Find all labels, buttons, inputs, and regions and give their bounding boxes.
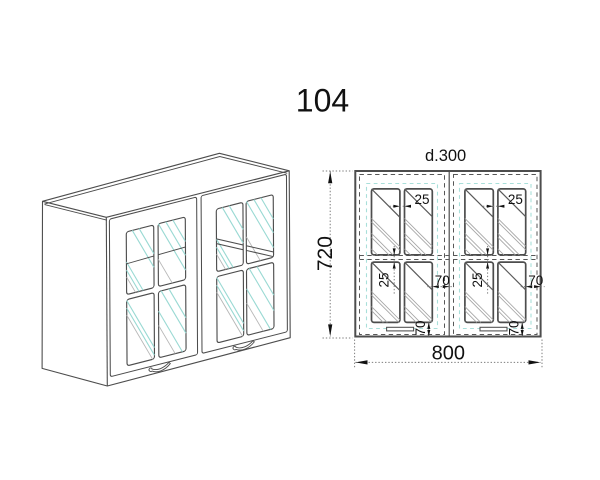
svg-text:25: 25 bbox=[376, 272, 391, 287]
svg-text:70: 70 bbox=[413, 320, 428, 335]
svg-text:720: 720 bbox=[314, 236, 337, 271]
svg-text:d.300: d.300 bbox=[425, 147, 466, 165]
svg-text:800: 800 bbox=[432, 343, 465, 365]
svg-text:25: 25 bbox=[415, 192, 430, 207]
svg-text:70: 70 bbox=[507, 320, 522, 335]
svg-text:25: 25 bbox=[470, 272, 485, 287]
svg-text:70: 70 bbox=[435, 273, 450, 288]
svg-text:25: 25 bbox=[508, 192, 523, 207]
svg-text:70: 70 bbox=[528, 273, 543, 288]
svg-text:104: 104 bbox=[296, 83, 349, 119]
